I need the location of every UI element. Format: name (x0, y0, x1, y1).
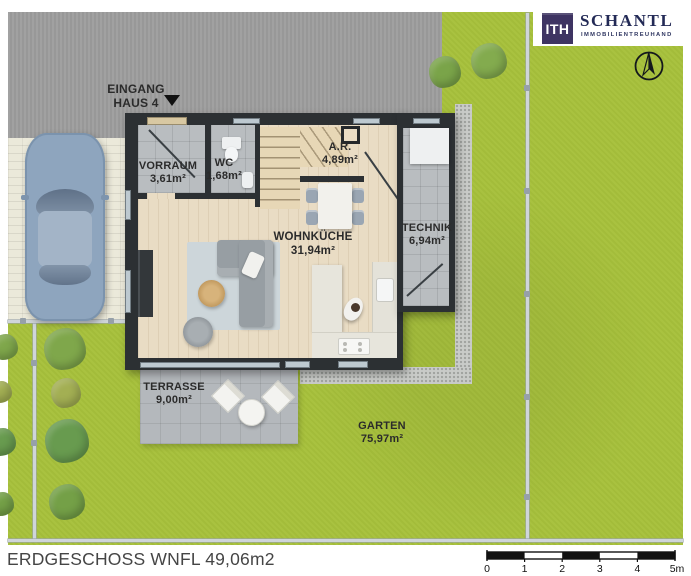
scale-tick: 0 (484, 563, 490, 575)
brand-logo-box: ITH SCHANTL IMMOBILIENTREUHAND (533, 0, 691, 46)
ith-logo-icon: ITH (542, 13, 573, 44)
bush (51, 378, 81, 408)
plan-title: ERDGESCHOSS WNFL 49,06m2 (7, 549, 275, 570)
window (233, 118, 260, 124)
room-area: 3,61m² (139, 173, 197, 186)
window (285, 361, 310, 368)
fence-post (524, 494, 530, 500)
entrance-arrow-icon (164, 95, 180, 106)
room-label-terrasse: TERRASSE 9,00m² (143, 381, 205, 407)
room-area: 9,00m² (143, 394, 205, 407)
door-opening (147, 193, 175, 199)
scale-tick: 5m (670, 563, 685, 575)
room-name: TERRASSE (143, 381, 205, 394)
dining-chair (352, 188, 364, 203)
burner (358, 342, 362, 346)
entrance-line2: HAUS 4 (107, 96, 164, 110)
brand-company-name: SCHANTL (580, 11, 673, 31)
entrance-line1: EINGANG (107, 82, 164, 96)
scale-tick: 4 (634, 563, 640, 575)
fence-east (526, 13, 529, 540)
car-roof (38, 211, 92, 267)
sliding-door (140, 362, 280, 368)
pouf (183, 317, 213, 347)
scale-tick: 2 (559, 563, 565, 575)
footer-bar: ERDGESCHOSS WNFL 49,06m2 0 1 2 3 4 5m (0, 545, 691, 576)
car-rear-window (39, 265, 91, 285)
kitchen-sink (376, 278, 394, 302)
fence-south (8, 539, 683, 542)
building-main (125, 113, 403, 370)
room-name: WOHNKÜCHE (273, 231, 352, 245)
coffee-table (198, 280, 225, 307)
kitchen-island (312, 265, 342, 332)
fence-post (31, 440, 37, 446)
fence-post (524, 394, 530, 400)
floor-plan-page: EINGANG HAUS 4 VORRAUM 3,61m² WC 1,68m² … (0, 0, 691, 576)
window (338, 361, 368, 368)
brand-tagline: IMMOBILIENTREUHAND (581, 32, 673, 38)
bush (49, 484, 85, 520)
boiler-unit (410, 128, 449, 164)
fence-post (524, 188, 530, 194)
room-area: 1,68m² (206, 170, 242, 183)
window (413, 118, 440, 124)
room-area: 75,97m² (358, 433, 406, 446)
car-mirror (21, 195, 29, 200)
dining-chair (306, 188, 318, 203)
room-name: WC (206, 157, 242, 170)
fence-post (20, 318, 26, 324)
room-name: TECHNIK (402, 222, 452, 235)
burner (343, 348, 347, 352)
room-label-vorraum: VORRAUM 3,61m² (139, 160, 197, 186)
dining-table (318, 183, 352, 229)
room-label-technik: TECHNIK 6,94m² (402, 222, 452, 248)
wc-sink (242, 172, 253, 188)
person-head (351, 303, 360, 312)
gravel-strip-east (455, 104, 472, 374)
dining-chair (352, 210, 364, 225)
tv-sideboard (138, 250, 153, 317)
entrance-annotation: EINGANG HAUS 4 (107, 82, 164, 111)
room-name: VORRAUM (139, 160, 197, 173)
dining-chair (306, 210, 318, 225)
bush (429, 56, 461, 88)
room-label-wc: WC 1,68m² (206, 157, 242, 183)
wall (300, 176, 364, 182)
burner (358, 348, 362, 352)
room-area: 31,94m² (273, 245, 352, 259)
room-name: A.R. (322, 141, 358, 154)
staircase (260, 127, 300, 209)
fence-post (524, 85, 530, 91)
room-label-garten: GARTEN 75,97m² (358, 420, 406, 446)
car-mirror (101, 195, 109, 200)
scale-tick: 3 (597, 563, 603, 575)
cooktop (338, 338, 370, 355)
room-area: 6,94m² (402, 235, 452, 248)
north-compass-icon (632, 48, 666, 82)
terrace-table (238, 399, 265, 426)
car (25, 133, 105, 321)
room-label-wohnkueche: WOHNKÜCHE 31,94m² (273, 231, 352, 259)
fence-post (108, 318, 114, 324)
scale-tick: 1 (522, 563, 528, 575)
room-name: GARTEN (358, 420, 406, 433)
burner (343, 342, 347, 346)
window (353, 118, 380, 124)
bush (44, 328, 86, 370)
room-label-ar: A.R. 4,89m² (322, 141, 358, 167)
fence-post (31, 360, 37, 366)
bush (45, 419, 89, 463)
window (125, 270, 131, 313)
fence-post (524, 291, 530, 297)
fence-west (33, 322, 36, 540)
room-area: 4,89m² (322, 154, 358, 167)
bush (471, 43, 507, 79)
scale-bar: 0 1 2 3 4 5m (478, 547, 686, 575)
entrance-doormat (147, 117, 187, 125)
window (125, 190, 131, 220)
building-technik-wing (397, 113, 455, 312)
